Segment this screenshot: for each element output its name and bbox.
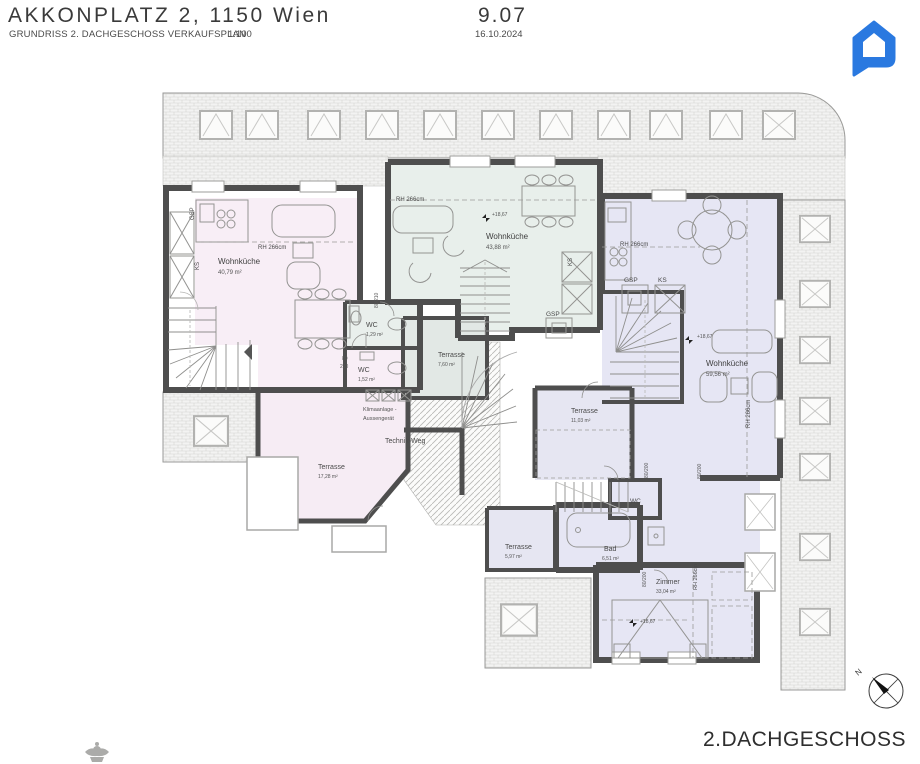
room-terrasse-5-area: 5,97 m²: [505, 554, 522, 560]
room-wohnkueche-green-area: 43,88 m²: [486, 245, 510, 251]
klimaanlage-label-1: Klimaanlage -: [363, 407, 397, 413]
bad-fill: [556, 505, 640, 570]
floorplan-sheet: AKKONPLATZ 2, 1150 Wien GRUNDRISS 2. DAC…: [0, 0, 920, 764]
door-dim-pink-80: 80: [342, 356, 348, 362]
gsp-green: GSP: [546, 311, 560, 318]
rh-note-pink: RH 266cm: [258, 245, 286, 251]
rh-note-green: RH 266cm: [396, 197, 424, 203]
room-terrasse-7: Terrasse: [438, 352, 465, 359]
crest-emblem: [85, 742, 109, 762]
door-dim-zimmer: 80/200: [642, 571, 648, 587]
rh-note-zimmer: RH 266cm: [693, 564, 699, 590]
ks-pink: KS: [195, 262, 201, 270]
room-bad: Bad: [604, 546, 617, 553]
room-wc-green: WC: [366, 322, 378, 329]
room-wc-green-area: 1,29 m²: [366, 332, 383, 338]
gsp-pink: GSP: [190, 207, 196, 220]
room-wohnkueche-lavender-area: 59,56 m²: [706, 372, 730, 378]
door-dim-lav-wc: 80/200: [644, 462, 650, 478]
room-wohnkueche-lavender: Wohnküche: [706, 359, 749, 368]
ks-lavender: KS: [658, 277, 667, 284]
terrace-5-fill: [487, 508, 556, 572]
room-wc-lavender: WC: [630, 498, 641, 505]
level-zimmer: +18,67: [640, 619, 656, 625]
rh-note-lavender-vert: RH 266cm: [746, 400, 752, 428]
room-terrasse-17-area: 17,28 m²: [318, 474, 338, 480]
room-terrasse-7-area: 7,60 m²: [438, 362, 455, 368]
level-green: +18,67: [492, 212, 508, 218]
room-wohnkueche-green: Wohnküche: [486, 232, 529, 241]
door-dim-lav-right: 80/200: [697, 463, 703, 479]
room-wc-pink-area: 1,52 m²: [358, 377, 375, 383]
floorplan-drawing: RH 266cm Wohnküche 40,79 m² RH 266cm +18…: [0, 0, 920, 764]
rh-note-lavender: RH 266cm: [620, 242, 648, 248]
compass-north-label: N: [854, 667, 864, 678]
ks-green: KS: [568, 258, 574, 266]
room-bad-area: 6,51 m²: [602, 556, 619, 562]
room-terrasse-11: Terrasse: [571, 408, 598, 415]
technik-weg-label: Technik-Weg: [385, 438, 425, 445]
room-terrasse-17: Terrasse: [318, 464, 345, 471]
room-wohnkueche-pink-area: 40,79 m²: [218, 270, 242, 276]
klimaanlage-label-2: Aussengerät: [363, 416, 394, 422]
room-zimmer: Zimmer: [656, 579, 680, 586]
gsp-lavender: GSP: [624, 277, 638, 284]
room-wc-pink: WC: [358, 367, 370, 374]
compass-icon: N: [854, 667, 903, 708]
level-lavender: +18,67: [697, 334, 713, 340]
door-dim-pink-210: 210: [340, 364, 349, 370]
room-wohnkueche-pink: Wohnküche: [218, 257, 261, 266]
room-terrasse-11-area: 11,03 m²: [571, 418, 591, 424]
room-terrasse-5: Terrasse: [505, 544, 532, 551]
room-zimmer-area: 33,04 m²: [656, 589, 676, 595]
door-dim-green-wc: 80/210: [374, 292, 380, 308]
